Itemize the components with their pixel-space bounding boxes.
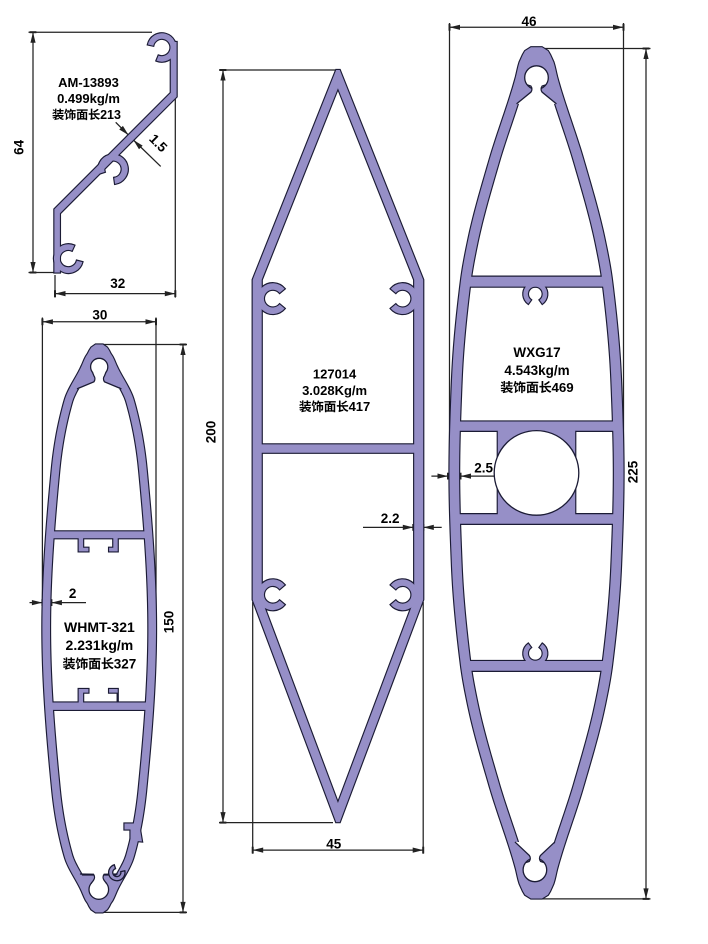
svg-text:46: 46 (521, 14, 537, 29)
svg-text:2.5: 2.5 (474, 461, 493, 476)
svg-text:2.231kg/m: 2.231kg/m (66, 637, 134, 653)
svg-text:150: 150 (162, 611, 177, 634)
svg-text:AM-13893: AM-13893 (58, 75, 119, 90)
svg-text:0.499kg/m: 0.499kg/m (57, 91, 120, 106)
svg-text:64: 64 (12, 139, 27, 155)
svg-text:417: 417 (349, 399, 371, 414)
svg-text:469: 469 (552, 380, 574, 395)
svg-text:4.543kg/m: 4.543kg/m (504, 363, 569, 378)
svg-text:327: 327 (114, 656, 137, 671)
svg-text:45: 45 (326, 836, 342, 851)
svg-text:213: 213 (100, 108, 121, 122)
svg-text:WXG17: WXG17 (513, 345, 560, 360)
svg-text:30: 30 (92, 308, 107, 323)
svg-text:2: 2 (69, 586, 77, 601)
svg-text:225: 225 (626, 460, 641, 483)
svg-text:32: 32 (110, 276, 125, 291)
svg-text:WHMT-321: WHMT-321 (64, 619, 135, 635)
svg-text:127014: 127014 (313, 367, 357, 382)
svg-text:3.028Kg/m: 3.028Kg/m (302, 383, 367, 398)
svg-text:2.2: 2.2 (381, 511, 400, 526)
svg-text:200: 200 (203, 421, 218, 444)
